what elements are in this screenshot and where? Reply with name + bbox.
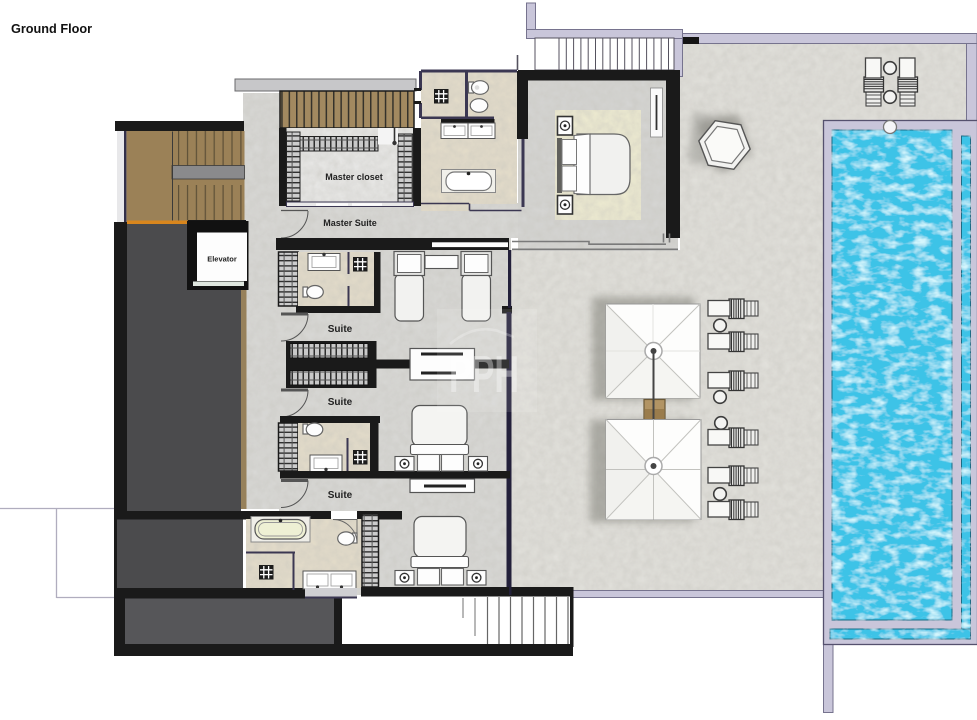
svg-text:Suite: Suite <box>328 324 353 335</box>
svg-text:PPH: PPH <box>449 346 519 404</box>
svg-text:Suite: Suite <box>328 397 353 408</box>
svg-text:Master closet: Master closet <box>325 172 383 182</box>
svg-text:Master Suite: Master Suite <box>323 218 377 228</box>
svg-text:Suite: Suite <box>328 490 353 501</box>
svg-text:Elevator: Elevator <box>207 255 237 264</box>
svg-text:Ground Floor: Ground Floor <box>11 22 92 36</box>
